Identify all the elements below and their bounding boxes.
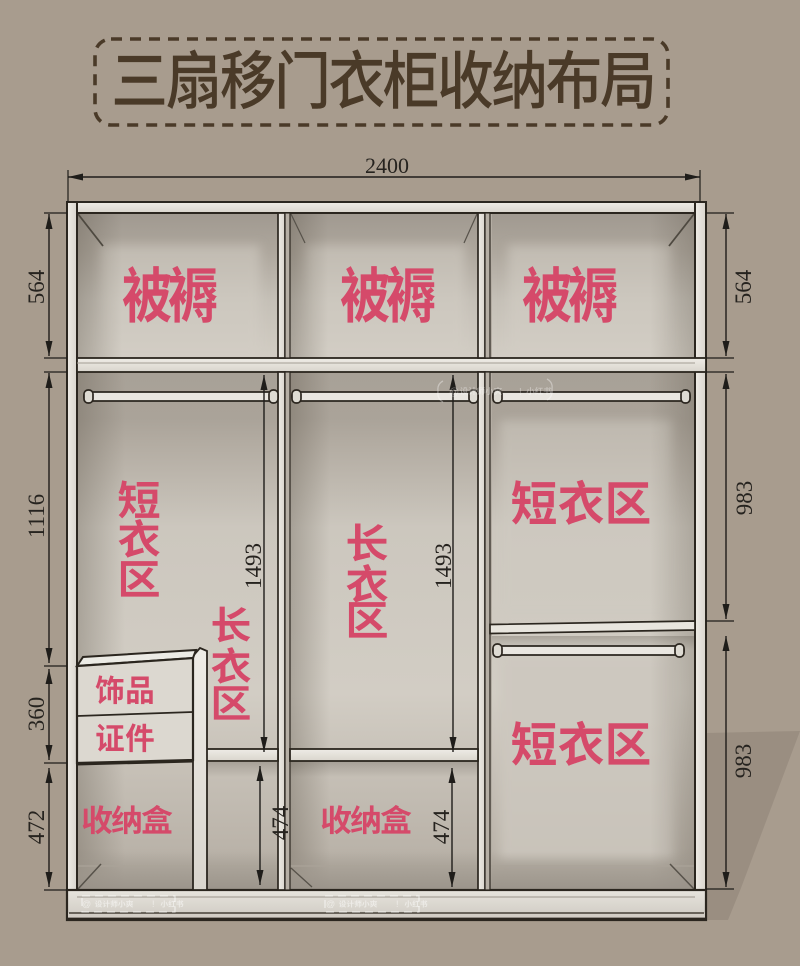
svg-text:@: @ (326, 899, 335, 909)
svg-text:564: 564 (731, 269, 756, 304)
svg-text:2400: 2400 (365, 153, 409, 178)
svg-text:1116: 1116 (24, 494, 49, 538)
svg-text:360: 360 (24, 697, 49, 732)
svg-text:1493: 1493 (241, 543, 266, 589)
svg-text:@: @ (449, 387, 459, 398)
svg-text:!: ! (396, 899, 399, 909)
svg-text:472: 472 (24, 810, 49, 845)
svg-text:!: ! (519, 387, 522, 398)
svg-text:@: @ (82, 899, 91, 909)
svg-text:564: 564 (24, 269, 49, 304)
svg-text:!: ! (152, 899, 155, 909)
svg-text:983: 983 (731, 744, 756, 779)
svg-text:474: 474 (268, 805, 293, 840)
svg-text:1493: 1493 (431, 543, 456, 589)
svg-text:983: 983 (732, 481, 757, 516)
svg-text:474: 474 (429, 809, 454, 844)
